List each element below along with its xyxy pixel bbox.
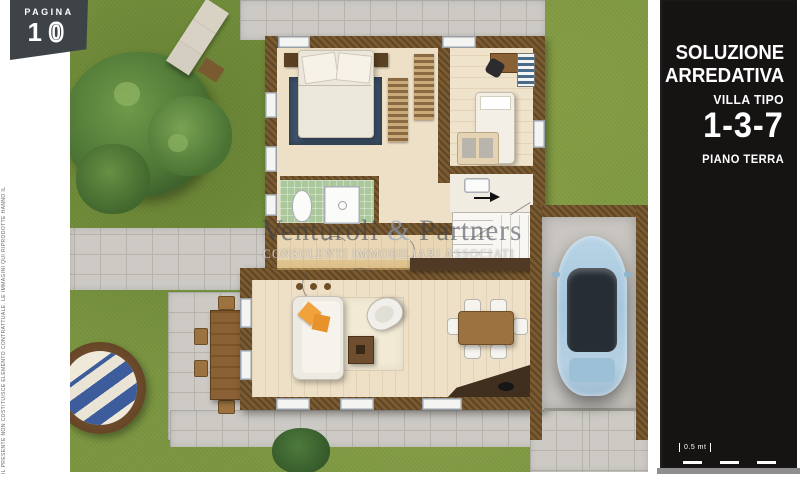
cooktop-sink xyxy=(498,382,514,391)
garage-wall xyxy=(530,205,542,440)
page-number: 10 xyxy=(10,19,88,45)
scale-label: 0.5 mt xyxy=(679,443,711,452)
garage-door-line xyxy=(544,408,636,411)
villa-type-number: 1-3-7 xyxy=(703,106,784,146)
dining-chair xyxy=(464,344,481,359)
tree-highlight xyxy=(168,134,188,152)
blanket-fold xyxy=(299,85,371,86)
scale-dash xyxy=(683,461,702,464)
armchair-seat xyxy=(372,302,397,326)
partition-wall xyxy=(438,48,450,183)
pillow xyxy=(301,52,339,84)
tree-canopy xyxy=(76,144,150,214)
brochure-page: Venturoli & Partners CONSULENTI IMMOBILI… xyxy=(0,0,800,480)
window xyxy=(422,398,462,410)
nightstand xyxy=(374,53,388,67)
title-line2: ARREDATIVA xyxy=(665,65,784,87)
dining-chair xyxy=(513,318,528,335)
washbasin xyxy=(464,178,490,193)
lounger-cushion xyxy=(166,0,229,75)
double-bed xyxy=(298,50,374,138)
table-item xyxy=(356,345,365,354)
door-opening xyxy=(442,36,476,48)
window xyxy=(276,398,310,410)
sofa-bed xyxy=(457,132,499,165)
window xyxy=(278,36,310,48)
floor-label: PIANO TERRA xyxy=(702,152,784,166)
pillow xyxy=(480,96,511,110)
dining-table xyxy=(458,311,514,345)
watermark-ampersand-icon: & xyxy=(387,214,411,247)
driveway-line xyxy=(589,411,590,469)
window xyxy=(265,146,277,172)
direction-arrow-icon xyxy=(490,192,500,202)
scale-dash xyxy=(720,461,739,464)
outdoor-chair xyxy=(194,360,208,377)
scale-dash xyxy=(757,461,776,464)
sidebar-title: SOLUZIONE ARREDATIVA xyxy=(665,42,784,88)
outdoor-chair xyxy=(194,328,208,345)
sun-lounger xyxy=(162,0,248,90)
orange-pillow xyxy=(312,314,331,333)
top-path xyxy=(240,0,545,40)
door-line xyxy=(474,197,490,199)
tree-canopy xyxy=(148,96,232,176)
cushion xyxy=(479,138,493,158)
cushion xyxy=(462,138,476,158)
page-badge-label: PAGINA xyxy=(10,7,88,17)
car-mirror xyxy=(624,272,632,277)
bookshelf xyxy=(517,53,535,87)
watermark-word1: Venturoli xyxy=(262,214,379,247)
car xyxy=(557,236,627,396)
garden-bush xyxy=(272,428,330,472)
dining-chair xyxy=(490,344,507,359)
garage-wall xyxy=(530,205,648,217)
window xyxy=(340,398,374,410)
footer-gray-strip xyxy=(657,468,800,474)
page-digit: 1 xyxy=(28,17,49,47)
garage-wall xyxy=(636,205,648,440)
wardrobe xyxy=(414,54,434,120)
window xyxy=(265,92,277,118)
car-mirror xyxy=(552,272,560,277)
bottom-path xyxy=(170,410,545,447)
scale-bar: 0.5 mt xyxy=(679,444,711,451)
page-digit: 0 xyxy=(49,17,70,47)
outdoor-table xyxy=(210,310,243,400)
title-line1: SOLUZIONE xyxy=(675,42,784,64)
outdoor-chair xyxy=(218,296,235,310)
villa-type-label: VILLA TIPO xyxy=(713,92,784,107)
window xyxy=(240,350,252,380)
round-daybed xyxy=(70,342,146,434)
disclaimer-text: IL PRESENTE NON COSTITUISCE ELEMENTO CON… xyxy=(1,186,11,474)
window xyxy=(265,194,277,216)
walkway xyxy=(70,228,267,290)
nightstand xyxy=(284,53,298,67)
watermark-word2: Partners xyxy=(419,214,522,247)
wall-segment xyxy=(450,166,533,174)
tree-highlight xyxy=(114,82,140,106)
car-trunk xyxy=(569,358,615,382)
watermark-brand: Venturoli & Partners xyxy=(262,214,522,248)
window xyxy=(240,298,252,328)
info-sidebar: SOLUZIONE ARREDATIVA VILLA TIPO 1-3-7 PI… xyxy=(660,0,797,468)
sofa xyxy=(292,296,344,380)
pillow xyxy=(336,52,373,83)
watermark-tagline: CONSULENTI IMMOBILIARI ASSOCIATI xyxy=(263,246,515,262)
coffee-table xyxy=(348,336,374,364)
car-roof-glass xyxy=(567,268,617,352)
lounger-base xyxy=(197,57,224,82)
shower-drain xyxy=(338,201,347,210)
window xyxy=(533,120,545,148)
outdoor-chair xyxy=(218,400,235,414)
wardrobe xyxy=(388,78,408,142)
